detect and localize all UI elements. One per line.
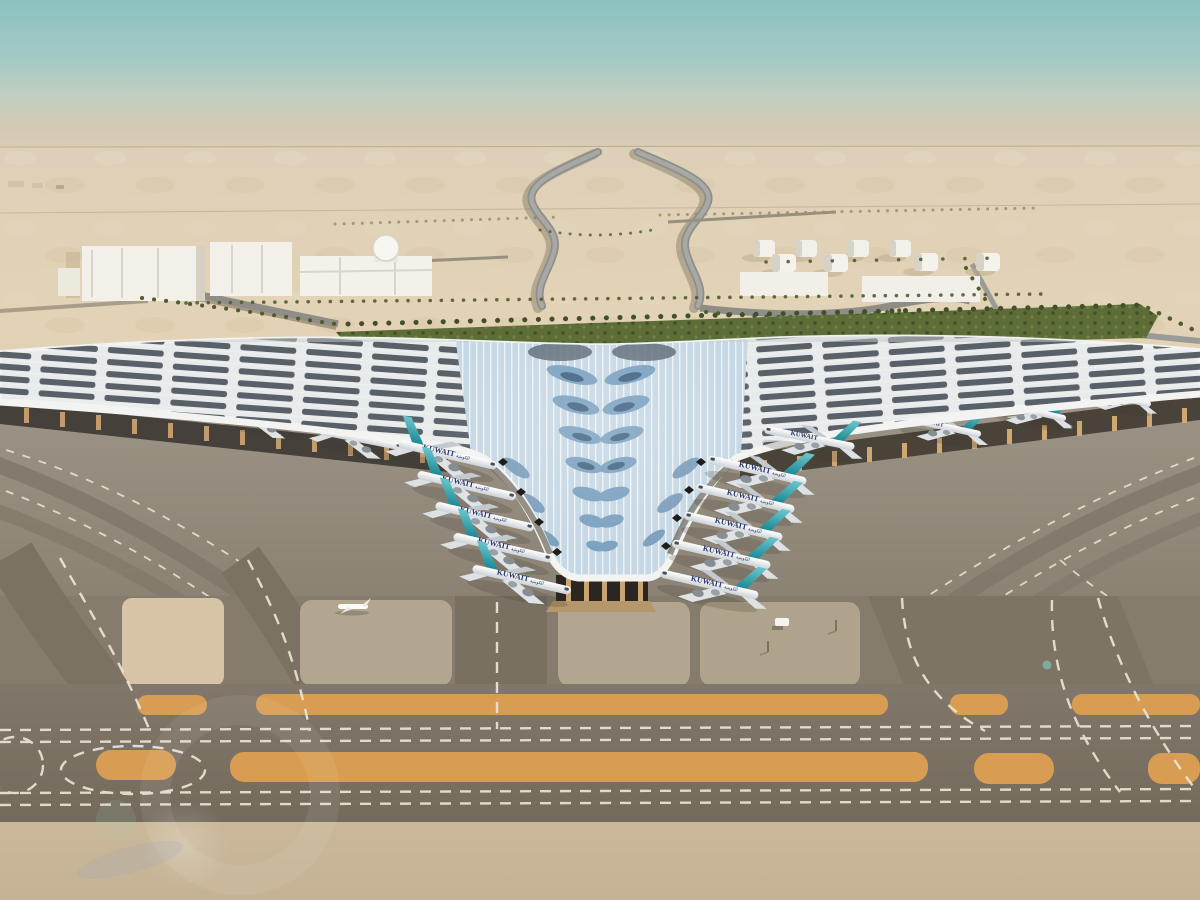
scene-canvas: KUWAIT KUWAIT KUWAIT KUWAIT KUWAIT [0, 0, 1200, 900]
dome-building [373, 235, 399, 261]
warehouse-right-2 [862, 276, 980, 302]
apron-pad-1 [300, 600, 452, 686]
apron-pad-3 [700, 602, 860, 686]
sand-wedge [122, 598, 224, 686]
apron-pad-2 [558, 602, 690, 686]
airport-aerial-rendering: KUWAIT KUWAIT KUWAIT KUWAIT KUWAIT [0, 0, 1200, 900]
center-connector [455, 596, 547, 688]
sky [0, 0, 1200, 162]
warehouse-right-1 [740, 272, 828, 296]
